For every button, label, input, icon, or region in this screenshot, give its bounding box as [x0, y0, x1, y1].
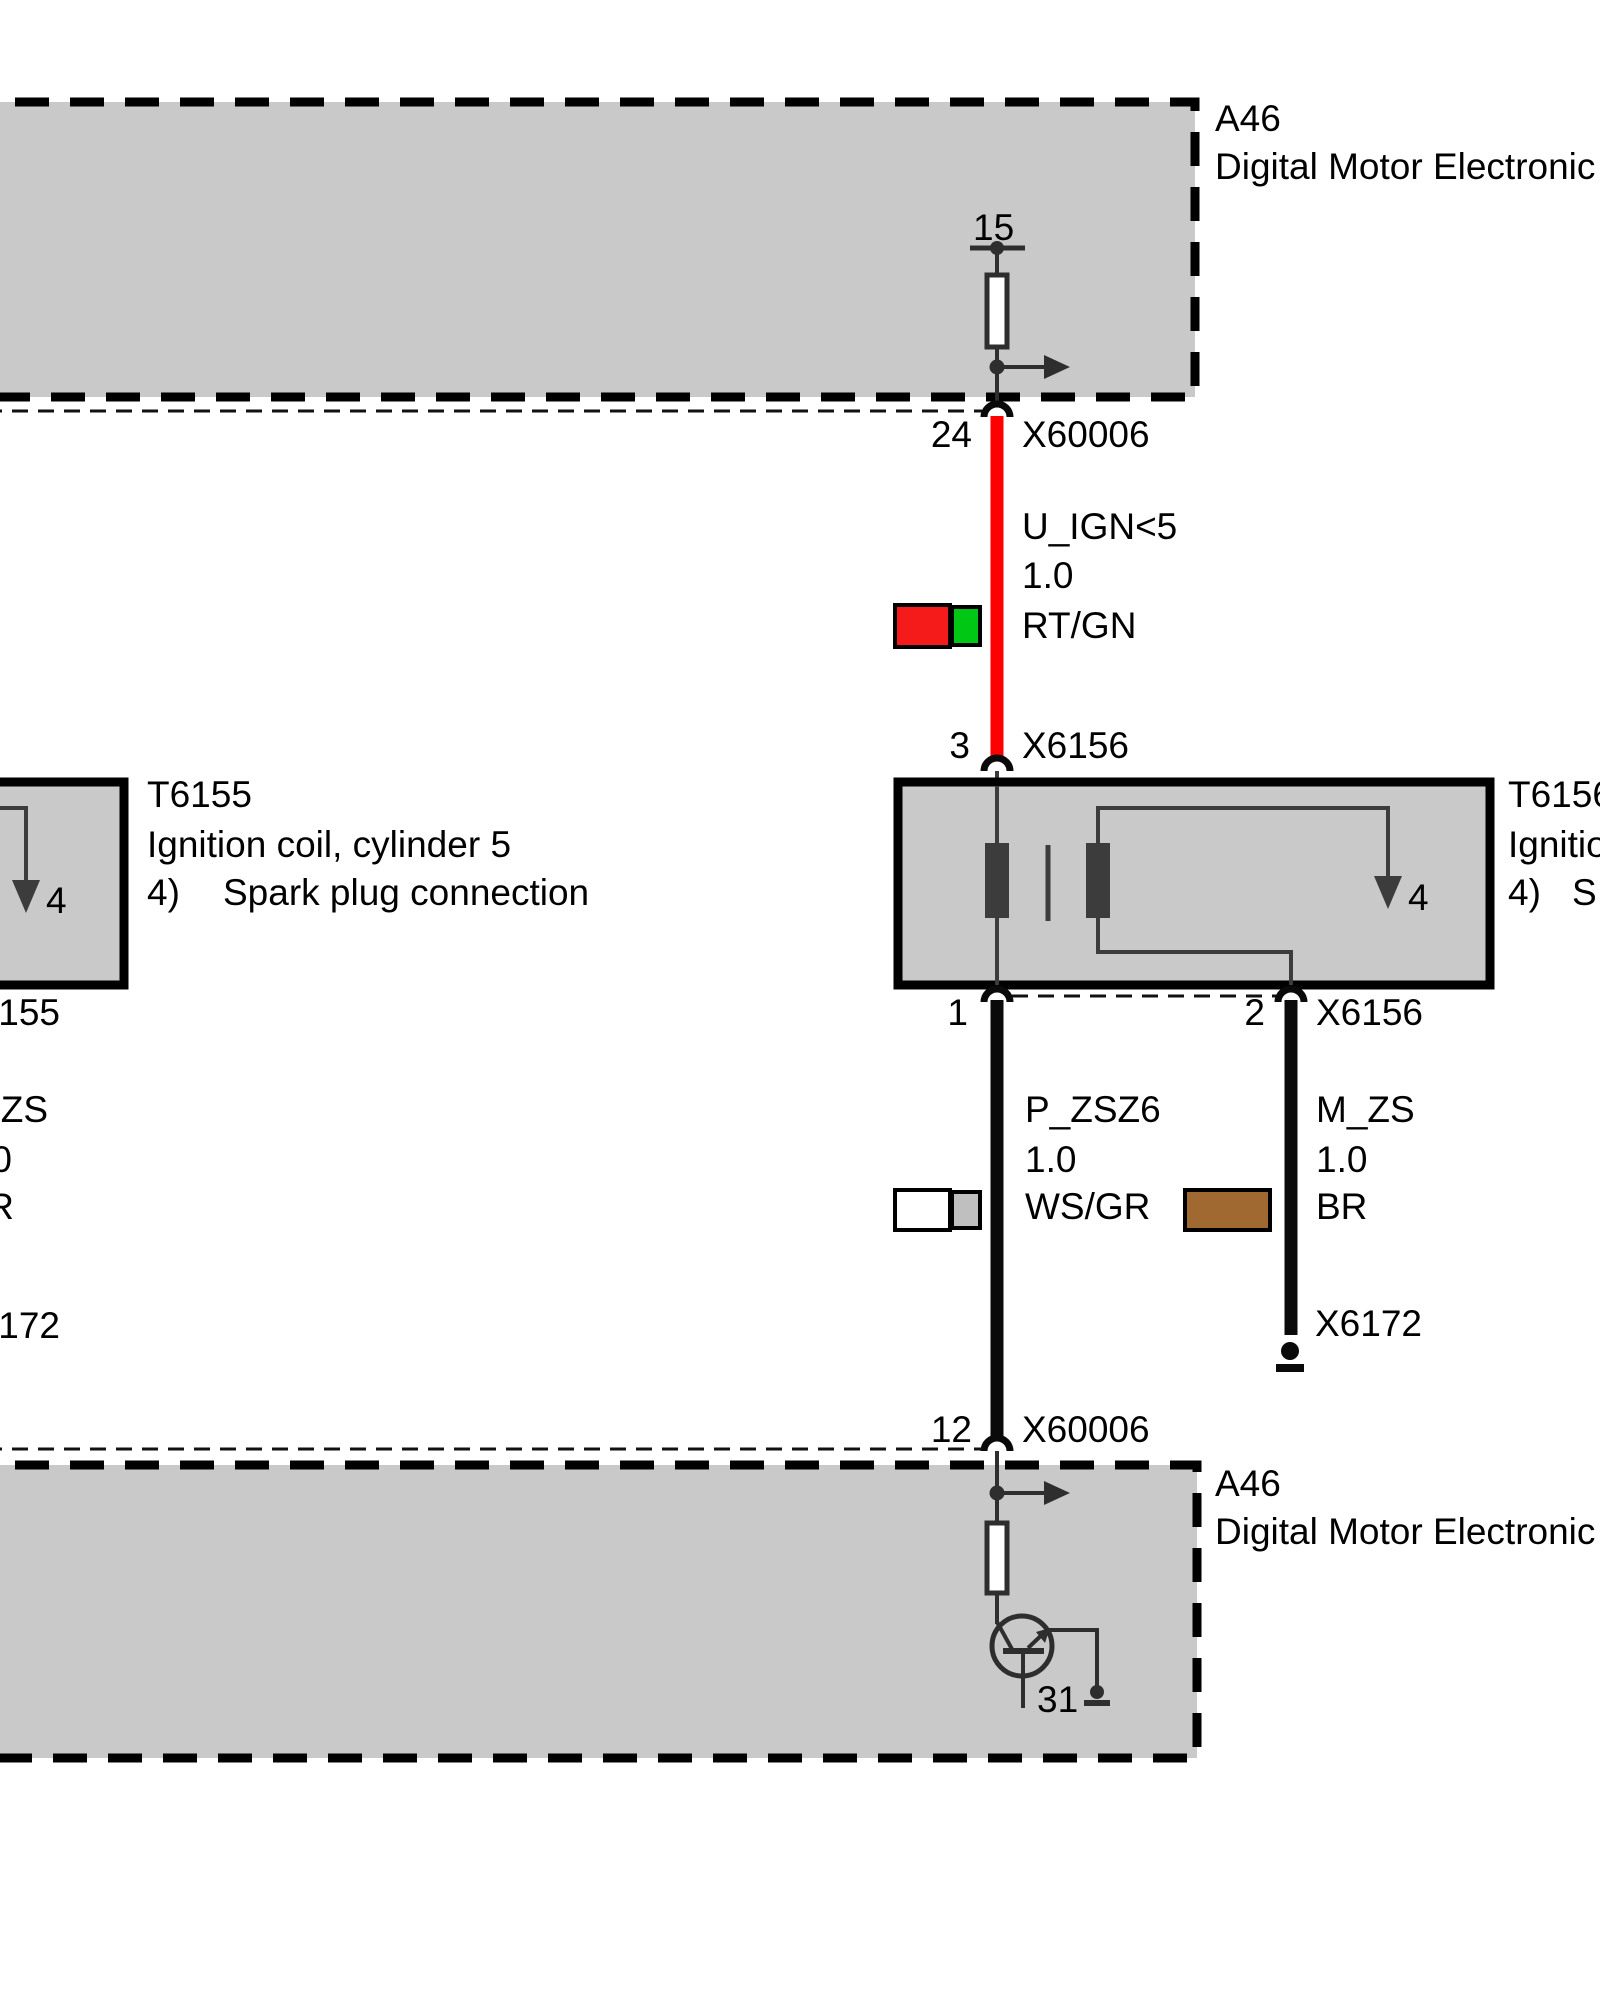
connector-x60006-bottom-label: X60006 — [1022, 1409, 1150, 1450]
ign-wire-code: RT/GN — [1022, 605, 1136, 646]
edge-fragment-size: 0 — [0, 1139, 12, 1180]
ground-dot-x6172 — [1281, 1342, 1299, 1360]
ground-x6172-label: X6172 — [1315, 1303, 1422, 1344]
t6156-name: Ignitio — [1508, 824, 1600, 865]
swatch-ws — [895, 1190, 950, 1230]
t6155-note-text: Spark plug connection — [223, 872, 589, 913]
terminal-15-label: 15 — [973, 207, 1014, 248]
t6155-note-prefix: 4) — [147, 872, 180, 913]
t6156-spark-pin-label: 4 — [1408, 877, 1429, 918]
pin-socket-arc-24 — [984, 404, 1010, 417]
edge-fragment-mzs: ZS — [1, 1089, 48, 1130]
pin-socket-arc-12 — [984, 1438, 1010, 1451]
m-wire-size: 1.0 — [1316, 1139, 1367, 1180]
p-wire-size: 1.0 — [1025, 1139, 1076, 1180]
edge-fragment-x6155: 155 — [0, 992, 60, 1033]
t6155-spark-pin-label: 4 — [46, 880, 67, 921]
pin-12-label: 12 — [931, 1409, 972, 1450]
dme-module-box-bottom — [0, 1465, 1197, 1758]
connector-x60006-top-label: X60006 — [1022, 414, 1150, 455]
resistor-bottom — [987, 1523, 1007, 1593]
swatch-gr — [952, 1192, 980, 1228]
ign-wire-size: 1.0 — [1022, 555, 1073, 596]
p-wire-signal: P_ZSZ6 — [1025, 1089, 1161, 1130]
pin-1-label: 1 — [947, 992, 968, 1033]
terminal-31-label: 31 — [1037, 1679, 1078, 1720]
pin-24-label: 24 — [931, 414, 972, 455]
m-wire-signal: M_ZS — [1316, 1089, 1415, 1130]
p-wire-code: WS/GR — [1025, 1186, 1150, 1227]
pin-2-label: 2 — [1244, 992, 1265, 1033]
ign-wire-signal: U_IGN<5 — [1022, 506, 1177, 547]
top-module-name: Digital Motor Electronic — [1215, 146, 1595, 187]
connector-x6156-top-label: X6156 — [1022, 725, 1129, 766]
pin-3-label: 3 — [949, 725, 970, 766]
bottom-module-id: A46 — [1215, 1463, 1281, 1504]
t6155-id: T6155 — [147, 774, 252, 815]
pin-socket-arc-3 — [984, 758, 1010, 771]
t6156-secondary-winding — [1086, 843, 1110, 918]
t6155-name: Ignition coil, cylinder 5 — [147, 824, 511, 865]
swatch-gn — [952, 607, 980, 645]
t6156-id: T6156 — [1508, 774, 1600, 815]
top-module-id: A46 — [1215, 98, 1281, 139]
resistor-top — [987, 275, 1007, 347]
swatch-rt — [895, 605, 950, 647]
m-wire-code: BR — [1316, 1186, 1367, 1227]
bottom-module-name: Digital Motor Electronic — [1215, 1511, 1595, 1552]
connector-x6156-bottom-label: X6156 — [1316, 992, 1423, 1033]
wiring-diagram-canvas: A46 Digital Motor Electronic 15 24 X6000… — [0, 0, 1600, 2005]
t6156-note-text: S — [1572, 872, 1597, 913]
edge-fragment-x6172: 172 — [0, 1305, 60, 1346]
swatch-br — [1185, 1190, 1270, 1230]
t6156-note-prefix: 4) — [1508, 872, 1541, 913]
t6156-primary-winding — [985, 843, 1009, 918]
edge-fragment-code: R — [0, 1186, 14, 1227]
terminal-31-dot — [1090, 1685, 1104, 1699]
